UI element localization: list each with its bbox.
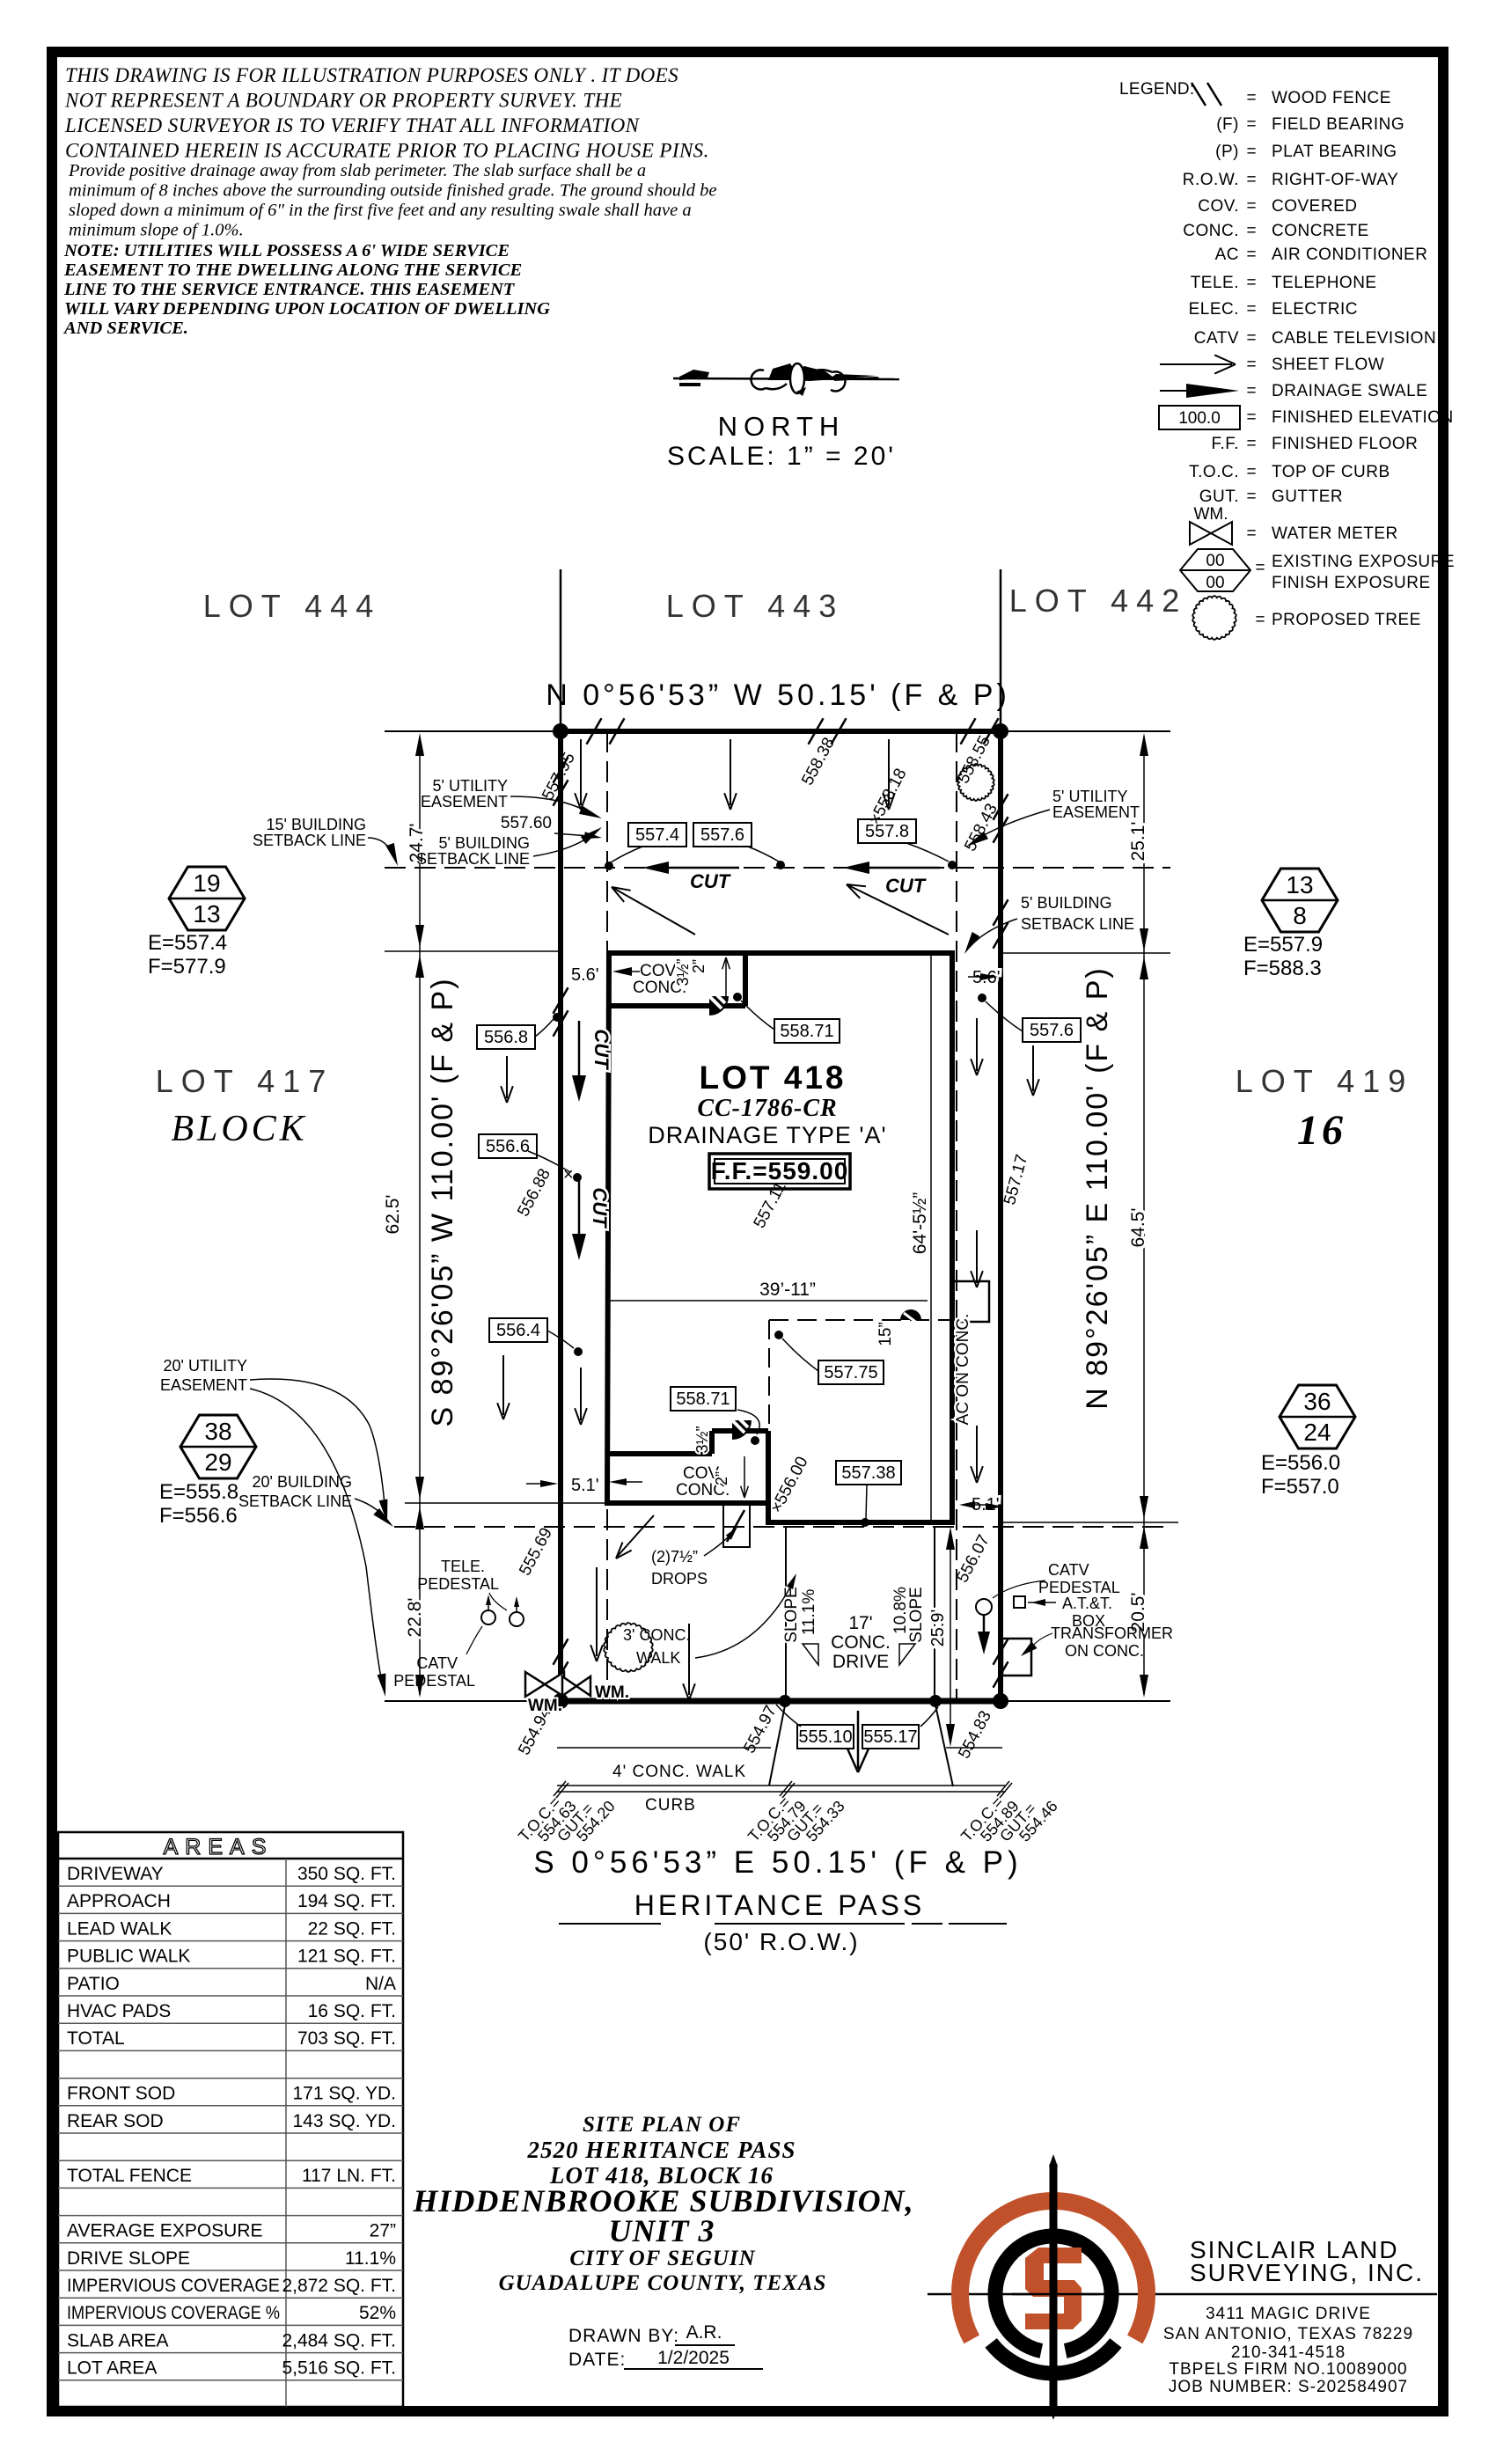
svg-text:=: =: [1246, 408, 1256, 427]
svg-text:CATV: CATV: [1194, 329, 1239, 348]
svg-text:(P): (P): [1215, 143, 1239, 161]
svg-text:NORTH: NORTH: [718, 411, 846, 442]
svg-text:FRONT SOD: FRONT SOD: [67, 2084, 175, 2104]
svg-text:3½”: 3½”: [674, 958, 692, 986]
svg-text:A.R.: A.R.: [686, 2322, 722, 2343]
svg-text:11.1%: 11.1%: [800, 1589, 818, 1636]
svg-text:29: 29: [204, 1448, 231, 1476]
svg-text:SHEET FLOW: SHEET FLOW: [1272, 356, 1384, 374]
svg-text:555.10: 555.10: [798, 1727, 852, 1747]
svg-text:F.F.=559.00: F.F.=559.00: [711, 1157, 849, 1184]
svg-text:=: =: [1246, 463, 1256, 481]
svg-text:DRAWN BY:: DRAWN BY:: [568, 2326, 679, 2346]
svg-text:13: 13: [1286, 871, 1313, 898]
svg-text:558.71: 558.71: [676, 1390, 730, 1409]
svg-text:APPROACH: APPROACH: [67, 1891, 171, 1911]
svg-text:CUT: CUT: [589, 1187, 611, 1228]
svg-text:EASEMENT: EASEMENT: [1052, 803, 1140, 821]
svg-text:CATV: CATV: [416, 1654, 458, 1672]
svg-text:PATIO: PATIO: [67, 1974, 120, 1994]
svg-text:62.5': 62.5': [383, 1195, 403, 1235]
svg-text:556.8: 556.8: [484, 1028, 528, 1047]
svg-text:WALK: WALK: [636, 1649, 680, 1667]
svg-text:PROPOSED TREE: PROPOSED TREE: [1272, 611, 1421, 629]
svg-text:AREAS: AREAS: [164, 1835, 274, 1859]
svg-text:=: =: [1246, 274, 1256, 292]
svg-text:R.O.W.: R.O.W.: [1183, 171, 1239, 189]
svg-text:E=557.4: E=557.4: [148, 931, 227, 955]
svg-text:SLOPE: SLOPE: [907, 1587, 926, 1642]
svg-text:2,872 SQ. FT.: 2,872 SQ. FT.: [282, 2276, 396, 2296]
svg-text:S 89°26'05” W 110.00' (F: S 89°26'05” W 110.00' (F & P): [426, 977, 459, 1426]
svg-text:minimum of 8 inches above the: minimum of 8 inches above the surroundin…: [69, 181, 716, 201]
svg-text:×: ×: [563, 1165, 574, 1184]
svg-text:AIR CONDITIONER: AIR CONDITIONER: [1272, 246, 1427, 264]
svg-text:=: =: [1246, 171, 1256, 189]
svg-text:5' BUILDING: 5' BUILDING: [1021, 894, 1111, 912]
svg-text:=: =: [1246, 356, 1256, 374]
svg-text:557.6: 557.6: [1030, 1021, 1074, 1040]
svg-text:UNIT 3: UNIT 3: [609, 2213, 715, 2248]
svg-text:11.1%: 11.1%: [345, 2248, 396, 2269]
svg-text:PEDESTAL: PEDESTAL: [417, 1575, 499, 1593]
svg-text:556.4: 556.4: [496, 1321, 540, 1340]
svg-text:SETBACK LINE: SETBACK LINE: [416, 850, 530, 868]
svg-text:T.O.C.: T.O.C.: [1189, 463, 1239, 481]
svg-text:557.60: 557.60: [501, 814, 552, 832]
svg-text:DRIVE: DRIVE: [832, 1652, 889, 1672]
svg-text:2520 HERITANCE PASS: 2520 HERITANCE PASS: [526, 2137, 796, 2163]
svg-text:HERITANCE PASS: HERITANCE PASS: [634, 1889, 925, 1921]
svg-text:F=556.6: F=556.6: [159, 1504, 238, 1528]
svg-text:Provide positive drainage away: Provide positive drainage away from slab…: [68, 161, 646, 180]
svg-text:LICENSED SURVEYOR IS TO VERIFY: LICENSED SURVEYOR IS TO VERIFY THAT ALL …: [64, 114, 641, 136]
svg-text:F=577.9: F=577.9: [148, 955, 226, 979]
svg-text:E=557.9: E=557.9: [1243, 933, 1323, 957]
svg-text:EASEMENT: EASEMENT: [160, 1376, 247, 1394]
svg-text:EASEMENT TO THE DWELLING A: EASEMENT TO THE DWELLING ALONG THE SERVI…: [63, 260, 522, 280]
svg-text:S 0°56'53” E 50.15' (F &: S 0°56'53” E 50.15' (F & P): [533, 1845, 1022, 1880]
svg-text:3' CONC.: 3' CONC.: [623, 1626, 690, 1644]
svg-text:3411 MAGIC DRIVE: 3411 MAGIC DRIVE: [1206, 2305, 1371, 2323]
svg-text:=: =: [1246, 524, 1256, 543]
svg-text:5,516 SQ. FT.: 5,516 SQ. FT.: [282, 2358, 396, 2379]
svg-text:171 SQ. YD.: 171 SQ. YD.: [292, 2084, 396, 2104]
svg-text:5' UTILITY: 5' UTILITY: [1052, 788, 1127, 805]
svg-text:ELEC.: ELEC.: [1189, 300, 1239, 319]
svg-text:FINISHED ELEVATION: FINISHED ELEVATION: [1272, 408, 1454, 427]
svg-text:2”: 2”: [713, 1471, 730, 1485]
svg-text:=: =: [1246, 222, 1256, 240]
svg-text:F.F.: F.F.: [1211, 435, 1239, 453]
svg-text:PEDESTAL: PEDESTAL: [393, 1672, 475, 1690]
svg-text:=: =: [1246, 115, 1256, 134]
svg-text:SETBACK LINE: SETBACK LINE: [1021, 915, 1134, 933]
svg-text:EXISTING EXPOSURE: EXISTING EXPOSURE: [1272, 553, 1455, 571]
svg-text:F=557.0: F=557.0: [1261, 1475, 1339, 1499]
svg-text:38: 38: [204, 1418, 231, 1445]
svg-text:JOB NUMBER: S-202584907: JOB NUMBER: S-202584907: [1169, 2378, 1408, 2396]
svg-text:TOTAL FENCE: TOTAL FENCE: [67, 2166, 192, 2186]
svg-text:(50' R.O.W.): (50' R.O.W.): [703, 1928, 859, 1955]
svg-text:CC-1786-CR: CC-1786-CR: [697, 1095, 837, 1122]
svg-text:36: 36: [1303, 1388, 1331, 1415]
svg-text:WM.: WM.: [595, 1683, 629, 1702]
svg-text:WATER METER: WATER METER: [1272, 524, 1398, 543]
svg-text:CURB: CURB: [645, 1796, 696, 1815]
svg-text:TELE.: TELE.: [1191, 274, 1239, 292]
svg-text:DATE:: DATE:: [568, 2350, 626, 2370]
svg-text:=: =: [1246, 435, 1256, 453]
svg-text:WM.: WM.: [528, 1697, 562, 1715]
svg-text:NOT REPRESENT A BOUNDARY OR PR: NOT REPRESENT A BOUNDARY OR PROPERTY SUR…: [64, 90, 622, 112]
svg-text:24: 24: [1303, 1419, 1331, 1446]
svg-text:=: =: [1246, 488, 1256, 506]
svg-text:=: =: [1246, 382, 1256, 400]
svg-text:SAN ANTONIO, TEXAS 78229: SAN ANTONIO, TEXAS 78229: [1163, 2325, 1413, 2343]
svg-text:25.9': 25.9': [928, 1610, 948, 1647]
svg-text:COV.: COV.: [1198, 197, 1239, 216]
svg-text:13: 13: [193, 900, 220, 928]
svg-text:121 SQ. FT.: 121 SQ. FT.: [297, 1947, 396, 1967]
svg-text:FIELD BEARING: FIELD BEARING: [1272, 115, 1404, 134]
svg-text:25.1': 25.1': [1128, 822, 1148, 862]
svg-text:LOT 444: LOT 444: [203, 588, 381, 624]
svg-text:20' UTILITY: 20' UTILITY: [164, 1357, 247, 1375]
svg-text:350 SQ. FT.: 350 SQ. FT.: [297, 1864, 396, 1884]
svg-text:16: 16: [1297, 1107, 1346, 1154]
svg-text:minimum slope of 1.0%.: minimum slope of 1.0%.: [69, 221, 244, 240]
svg-text:22 SQ. FT.: 22 SQ. FT.: [308, 1918, 396, 1939]
svg-text:LOT 443: LOT 443: [666, 588, 844, 624]
svg-text:THIS DRAWING IS FOR ILLUSTRATI: THIS DRAWING IS FOR ILLUSTRATION PURPOSE…: [65, 64, 678, 86]
svg-text:CATV: CATV: [1048, 1561, 1089, 1579]
svg-text:SETBACK LINE: SETBACK LINE: [238, 1492, 352, 1510]
svg-text:=: =: [1246, 300, 1256, 319]
svg-text:=: =: [1246, 246, 1256, 264]
svg-text:557.8: 557.8: [865, 822, 909, 841]
svg-text:=: =: [1246, 329, 1256, 348]
svg-text:TRANSFORMER: TRANSFORMER: [1051, 1624, 1173, 1642]
svg-text:LOT 418: LOT 418: [700, 1060, 847, 1096]
svg-text:DRIVE SLOPE: DRIVE SLOPE: [67, 2248, 190, 2269]
svg-text:GUT.: GUT.: [1199, 488, 1239, 506]
svg-text:DRAINAGE SWALE: DRAINAGE SWALE: [1272, 382, 1427, 400]
svg-text:555.17: 555.17: [863, 1727, 917, 1747]
svg-text:1/2/2025: 1/2/2025: [657, 2348, 730, 2368]
svg-text:HVAC PADS: HVAC PADS: [67, 2001, 171, 2021]
svg-text:5' BUILDING: 5' BUILDING: [439, 834, 530, 852]
svg-text:WM.: WM.: [1193, 505, 1228, 524]
svg-text:117 LN. FT.: 117 LN. FT.: [302, 2166, 396, 2186]
svg-text:DRAINAGE TYPE 'A': DRAINAGE TYPE 'A': [648, 1122, 886, 1148]
svg-text:100.0: 100.0: [1178, 409, 1221, 428]
svg-text:00: 00: [1206, 552, 1224, 570]
svg-text:557.38: 557.38: [841, 1463, 895, 1483]
svg-text:(F): (F): [1216, 115, 1239, 134]
svg-text:sloped down a minimum of 6" in: sloped down a minimum of 6" in the first…: [69, 201, 692, 220]
svg-text:=: =: [1246, 197, 1256, 216]
svg-text:15' BUILDING: 15' BUILDING: [267, 816, 366, 833]
svg-text:TELEPHONE: TELEPHONE: [1272, 274, 1377, 292]
svg-text:52%: 52%: [359, 2303, 396, 2323]
svg-text:194 SQ. FT.: 194 SQ. FT.: [297, 1891, 396, 1911]
svg-text:16 SQ. FT.: 16 SQ. FT.: [308, 2001, 396, 2021]
svg-text:WOOD FENCE: WOOD FENCE: [1272, 89, 1391, 107]
svg-text:=: =: [1246, 89, 1256, 107]
svg-text:LOT 419: LOT 419: [1236, 1063, 1413, 1099]
svg-text:LOT AREA: LOT AREA: [67, 2358, 157, 2379]
svg-text:PLAT BEARING: PLAT BEARING: [1272, 143, 1397, 161]
svg-text:39’-11”: 39’-11”: [759, 1280, 816, 1300]
svg-text:AC ON CONC.: AC ON CONC.: [954, 1314, 972, 1426]
svg-text:3½”: 3½”: [693, 1426, 711, 1453]
svg-text:210-341-4518: 210-341-4518: [1231, 2343, 1346, 2362]
svg-text:E=555.8: E=555.8: [159, 1480, 238, 1504]
svg-text:=: =: [1255, 611, 1265, 629]
svg-text:ELECTRIC: ELECTRIC: [1272, 300, 1358, 319]
svg-text:SETBACK LINE: SETBACK LINE: [253, 832, 366, 849]
svg-text:CUT: CUT: [690, 870, 731, 892]
svg-text:AND SERVICE.: AND SERVICE.: [62, 319, 188, 338]
svg-text:A.T.&T.: A.T.&T.: [1062, 1595, 1112, 1612]
svg-text:LEGEND:: LEGEND:: [1119, 80, 1195, 99]
svg-text:NOTE: UTILITIES WILL POSSES: NOTE: UTILITIES WILL POSSESS A 6' WIDE S…: [63, 241, 510, 260]
svg-text:CITY OF SEGUIN: CITY OF SEGUIN: [569, 2247, 755, 2270]
svg-text:5.6': 5.6': [571, 965, 599, 985]
svg-text:TOTAL: TOTAL: [67, 2028, 125, 2049]
svg-text:PEDESTAL: PEDESTAL: [1038, 1579, 1120, 1596]
svg-text:=: =: [1255, 559, 1265, 577]
svg-text:556.6: 556.6: [486, 1137, 530, 1156]
svg-text:COV.: COV.: [640, 962, 679, 980]
svg-text:N 89°26'05” E 110.00' (F: N 89°26'05” E 110.00' (F & P): [1081, 966, 1114, 1410]
svg-text:BLOCK: BLOCK: [171, 1109, 307, 1149]
svg-text:LOT 442: LOT 442: [1009, 583, 1187, 619]
svg-text:IMPERVIOUS COVERAGE %: IMPERVIOUS COVERAGE %: [67, 2303, 280, 2323]
svg-text:00: 00: [1206, 574, 1224, 592]
svg-text:COVERED: COVERED: [1272, 197, 1357, 216]
svg-text:CABLE TELEVISION: CABLE TELEVISION: [1272, 329, 1436, 348]
svg-text:SLAB AREA: SLAB AREA: [67, 2330, 169, 2350]
svg-text:LEAD WALK: LEAD WALK: [67, 1918, 172, 1939]
svg-text:4' CONC. WALK: 4' CONC. WALK: [612, 1763, 746, 1781]
svg-text:IMPERVIOUS COVERAGE: IMPERVIOUS COVERAGE: [67, 2276, 280, 2296]
svg-text:64'-5½”: 64'-5½”: [910, 1192, 930, 1255]
svg-text:N/A: N/A: [365, 1974, 396, 1994]
svg-text:LOT 417: LOT 417: [156, 1063, 334, 1099]
svg-text:143 SQ. YD.: 143 SQ. YD.: [292, 2111, 396, 2131]
svg-text:LINE TO THE SERVICE ENTRAN: LINE TO THE SERVICE ENTRANCE. THIS EASEM…: [63, 280, 516, 299]
svg-text:27”: 27”: [370, 2221, 396, 2241]
svg-text:N 0°56'53” W 50.15' (F &: N 0°56'53” W 50.15' (F & P): [546, 678, 1010, 712]
svg-text:17': 17': [848, 1613, 872, 1633]
svg-text:TBPELS FIRM NO.10089000: TBPELS FIRM NO.10089000: [1169, 2360, 1407, 2379]
svg-text:2,484 SQ. FT.: 2,484 SQ. FT.: [282, 2330, 396, 2350]
svg-text:22.8': 22.8': [405, 1598, 425, 1638]
svg-text:SURVEYING, INC.: SURVEYING, INC.: [1190, 2259, 1424, 2286]
svg-text:EASEMENT: EASEMENT: [421, 793, 508, 810]
svg-text:557.6: 557.6: [700, 825, 744, 845]
svg-text:AC: AC: [1215, 246, 1239, 264]
svg-text:F=588.3: F=588.3: [1243, 957, 1322, 980]
svg-text:TOP OF CURB: TOP OF CURB: [1272, 463, 1390, 481]
svg-text:CUT: CUT: [590, 1029, 612, 1070]
svg-text:GUADALUPE COUNTY, TEXAS: GUADALUPE COUNTY, TEXAS: [499, 2271, 827, 2295]
svg-text:558.71: 558.71: [780, 1022, 833, 1041]
svg-text:FINISHED FLOOR: FINISHED FLOOR: [1272, 435, 1418, 453]
svg-text:SITE PLAN OF: SITE PLAN OF: [583, 2113, 741, 2137]
svg-text:5' UTILITY: 5' UTILITY: [433, 777, 508, 795]
svg-text:GUTTER: GUTTER: [1272, 488, 1343, 506]
svg-text:WILL VARY DEPENDING UPON L: WILL VARY DEPENDING UPON LOCATION OF DWE…: [64, 299, 550, 319]
svg-text:703 SQ. FT.: 703 SQ. FT.: [297, 2028, 396, 2049]
svg-text:RIGHT-OF-WAY: RIGHT-OF-WAY: [1272, 171, 1398, 189]
svg-text:=: =: [1246, 143, 1256, 161]
svg-text:19: 19: [193, 869, 220, 897]
svg-text:557.4: 557.4: [635, 825, 679, 845]
svg-text:CONC.: CONC.: [831, 1632, 891, 1653]
svg-text:DRIVEWAY: DRIVEWAY: [67, 1864, 164, 1884]
svg-text:CUT: CUT: [885, 875, 927, 897]
svg-text:557.75: 557.75: [824, 1363, 877, 1382]
svg-text:SCALE: 1” = 20': SCALE: 1” = 20': [667, 442, 896, 471]
svg-text:REAR SOD: REAR SOD: [67, 2111, 164, 2131]
svg-text:FINISH EXPOSURE: FINISH EXPOSURE: [1272, 574, 1431, 592]
svg-text:20' BUILDING: 20' BUILDING: [253, 1473, 352, 1491]
svg-text:CONCRETE: CONCRETE: [1272, 222, 1369, 240]
svg-text:DROPS: DROPS: [651, 1570, 708, 1588]
svg-text:5.1': 5.1': [571, 1476, 599, 1495]
svg-text:ON CONC.: ON CONC.: [1065, 1642, 1144, 1660]
svg-text:PUBLIC WALK: PUBLIC WALK: [67, 1947, 190, 1967]
svg-text:TELE.: TELE.: [441, 1558, 485, 1575]
svg-text:CONTAINED HEREIN IS ACCURATE P: CONTAINED HEREIN IS ACCURATE PRIOR TO PL…: [65, 140, 709, 162]
svg-text:(2)7½”: (2)7½”: [651, 1548, 698, 1566]
svg-text:15”: 15”: [876, 1322, 895, 1346]
svg-text:E=556.0: E=556.0: [1261, 1451, 1340, 1475]
svg-text:2”: 2”: [690, 959, 708, 973]
svg-text:8: 8: [1293, 902, 1307, 929]
svg-text:CONC.: CONC.: [1183, 222, 1239, 240]
svg-text:64.5': 64.5': [1128, 1208, 1148, 1248]
svg-text:AVERAGE EXPOSURE: AVERAGE EXPOSURE: [67, 2221, 263, 2241]
